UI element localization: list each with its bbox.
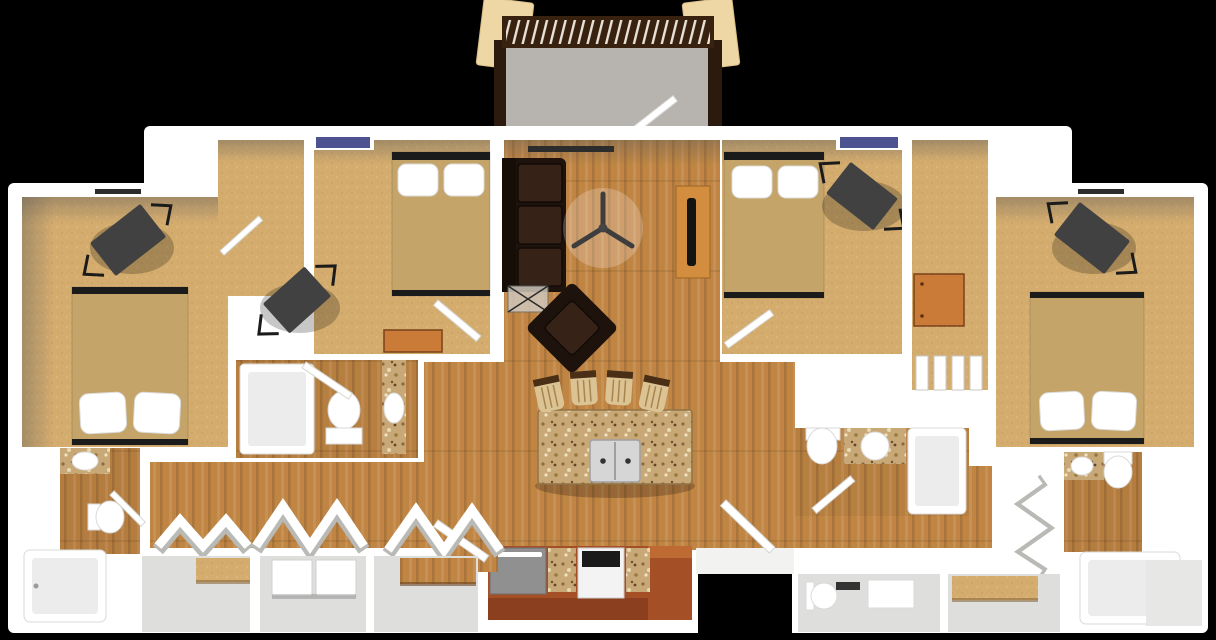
sink-cabinet: [868, 580, 914, 608]
pillow: [133, 392, 181, 434]
vanity-sink: [861, 432, 889, 460]
entry-landing: [696, 548, 794, 574]
toilet: [811, 583, 837, 609]
laundry-closet: [260, 556, 366, 632]
hall-nook-right: [720, 362, 795, 548]
bedroom-upper-right: [722, 134, 912, 354]
pillow: [1091, 391, 1137, 431]
laundry-door-panel: [316, 560, 356, 596]
closet-carpet: [912, 140, 988, 390]
bed: [392, 152, 490, 296]
window-slit: [528, 146, 614, 152]
vanity-sink: [1071, 457, 1093, 475]
bath-floor-right: [1146, 560, 1202, 626]
bathtub-basin: [32, 558, 98, 614]
bedroom-far-left: [22, 189, 228, 447]
toilet: [1104, 456, 1132, 488]
bathtub-basin: [248, 372, 306, 446]
half-bath-right: [798, 574, 940, 632]
bottom-notch: [698, 574, 792, 640]
stove-cooktop: [582, 551, 620, 567]
bathroom-center-right: [795, 428, 969, 516]
floor-plan-image: [0, 0, 1216, 640]
room-shade: [218, 140, 304, 162]
wall-bedroom-closet: [902, 140, 912, 362]
balcony-rail-left: [494, 40, 508, 138]
walk-in-closet-left: [142, 556, 250, 632]
hall-nook-left: [424, 362, 504, 464]
bathroom-center-left: [236, 360, 418, 458]
tv: [687, 198, 696, 266]
bedroom-far-right: [996, 189, 1194, 447]
ceiling-fan: [563, 188, 643, 268]
tub-faucet: [34, 584, 39, 589]
dresser: [384, 330, 442, 352]
room-shade: [22, 197, 54, 447]
window-slit: [1078, 189, 1124, 194]
window-slit: [95, 189, 141, 194]
closet-upper-right: [912, 140, 988, 390]
toilet: [807, 428, 837, 464]
bed: [724, 152, 824, 298]
dresser: [914, 274, 964, 326]
walk-in-closet-right: [948, 574, 1060, 632]
balcony-railing: [504, 18, 712, 46]
room-shade: [912, 140, 988, 162]
pillow: [732, 166, 772, 198]
toilet: [96, 501, 124, 533]
shelf: [836, 582, 860, 590]
sofa: [502, 158, 566, 292]
linen-closet-left: [374, 556, 478, 632]
pillow: [398, 164, 438, 196]
pillow: [79, 392, 127, 434]
laundry-door-panel: [272, 560, 312, 596]
pillow: [1039, 391, 1085, 431]
double-sink: [590, 440, 640, 482]
bathtub-basin: [915, 436, 959, 506]
cabinet-top: [648, 546, 692, 558]
dresser-knob: [920, 282, 924, 286]
vanity-sink: [384, 393, 404, 423]
balcony: [476, 0, 740, 138]
pillow: [778, 166, 818, 198]
toilet-tank: [326, 428, 362, 444]
counter-granite-left: [548, 548, 576, 592]
bed: [72, 287, 188, 445]
window: [840, 137, 898, 148]
floor-plan-svg: [0, 0, 1216, 640]
bed: [1030, 292, 1144, 444]
balcony-rail-right: [708, 40, 722, 138]
pillow: [444, 164, 484, 196]
closet-upper-left: [218, 140, 304, 296]
coffee-table: [508, 286, 548, 312]
vanity-sink: [72, 452, 98, 470]
kitchen-counter-run: [488, 546, 692, 620]
dresser-knob: [920, 314, 924, 318]
toilet: [328, 391, 360, 429]
counter-granite-right: [626, 548, 650, 592]
balcony-floor: [506, 44, 708, 138]
window: [316, 137, 370, 148]
